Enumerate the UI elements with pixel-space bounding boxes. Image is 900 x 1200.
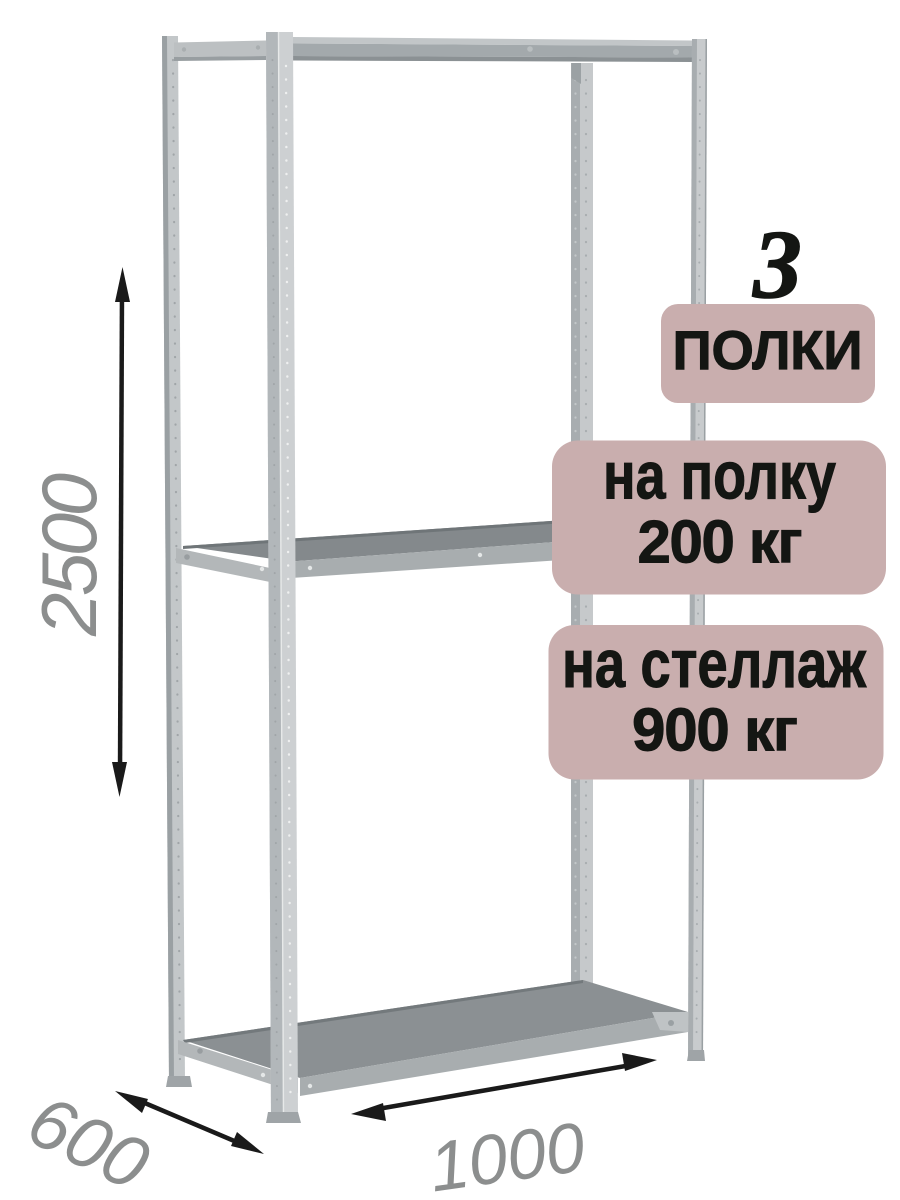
svg-text:200 кг: 200 кг <box>638 509 803 576</box>
svg-text:на полку: на полку <box>603 439 836 514</box>
svg-text:3: 3 <box>752 211 802 318</box>
svg-text:2500: 2500 <box>25 473 113 637</box>
svg-text:900 кг: 900 кг <box>632 697 798 764</box>
svg-text:ПОЛКИ: ПОЛКИ <box>673 320 863 381</box>
svg-text:на стеллаж: на стеллаж <box>562 626 867 702</box>
